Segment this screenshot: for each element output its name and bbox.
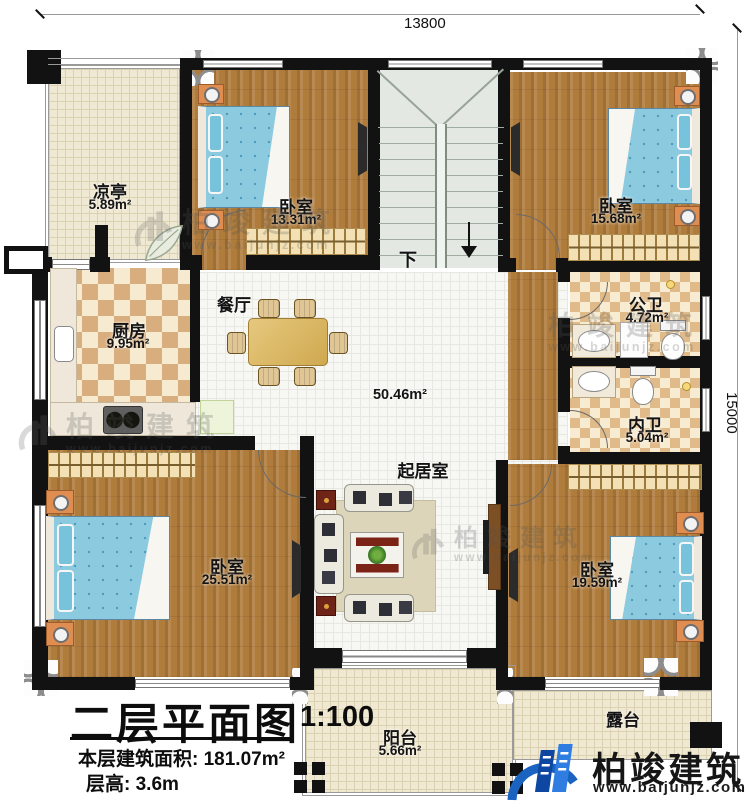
stairs-direction-line	[468, 222, 470, 246]
plant-pavilion	[140, 220, 186, 266]
area-bedroom-se: 19.59m²	[572, 575, 622, 590]
label-stairs-down: 下	[399, 246, 417, 272]
bath-sink	[578, 330, 610, 352]
stairs-center-rail	[435, 124, 447, 268]
label-living: 起居室	[398, 457, 449, 482]
brand-logo-icon	[498, 742, 586, 806]
wall-kitchen-east	[190, 268, 200, 402]
closet-bedroom-nw	[246, 228, 366, 255]
nightstand	[198, 210, 224, 230]
area-bath-private: 5.04m²	[626, 430, 669, 445]
tv-bedroom-ne	[511, 122, 520, 176]
wall-bath-south	[558, 452, 712, 464]
dimension-tick	[695, 4, 705, 14]
dining-chair	[294, 367, 316, 386]
floor-plan: 凉亭 5.89m² 卧室 13.31m² 卧室 15.68m² 厨房 9.95m…	[0, 0, 750, 811]
window-bedroom-nw	[203, 60, 283, 68]
dining-table	[248, 318, 328, 366]
balcony-glass-door	[342, 650, 467, 663]
nightstand	[46, 490, 74, 514]
plan-title: 二层平面图	[70, 690, 300, 752]
window-stairs	[388, 60, 492, 68]
pillow	[57, 570, 74, 612]
pillow	[679, 542, 694, 576]
pillow	[57, 524, 74, 566]
wall-bedroomnw-south	[246, 255, 378, 270]
balcony-pier-group	[294, 762, 307, 775]
wall-bedroomsw-south	[32, 677, 135, 690]
dining-chair	[258, 367, 280, 386]
area-bedroom-sw: 25.51m²	[202, 572, 252, 587]
nightstand	[46, 622, 74, 646]
window-bedroom-ne	[523, 60, 603, 68]
wall-bedroomse-south	[660, 677, 712, 690]
wall-bedroomne-south	[508, 258, 516, 272]
floor-height-line: 层高: 3.6m	[86, 769, 179, 796]
nightstand	[676, 620, 704, 642]
tv-cabinet-living	[488, 504, 501, 590]
title-underline	[70, 737, 290, 740]
pillow	[677, 154, 692, 190]
pillow	[679, 580, 694, 614]
pillow	[208, 114, 223, 152]
dimension-line-top	[40, 14, 700, 15]
toilet-tank	[630, 366, 656, 376]
wall-west-jog	[90, 257, 110, 272]
floor-area-line: 本层建筑面积: 181.07m²	[78, 744, 285, 771]
wall-hall-bath	[558, 272, 570, 282]
side-cabinet	[316, 490, 336, 510]
toilet-bowl	[632, 378, 654, 405]
area-bedroom-nw: 13.31m²	[271, 212, 321, 227]
area-pavilion: 5.89m²	[89, 197, 132, 212]
kitchen-sink	[54, 326, 74, 362]
closet-bedroom-ne	[568, 234, 700, 261]
dining-chair	[294, 299, 316, 318]
floor-height-label: 层高:	[86, 774, 130, 795]
window-bedroom-sw-south	[135, 679, 290, 688]
ceiling-lamp	[682, 382, 691, 391]
kitchen-door-mat	[200, 400, 234, 434]
closet-bedroom-se	[568, 464, 702, 490]
wall-living-south	[300, 648, 342, 668]
dining-chair	[227, 332, 246, 354]
pillow	[208, 156, 223, 194]
shower-tray	[620, 322, 648, 358]
area-living: 50.46m²	[373, 387, 427, 403]
nightstand	[198, 84, 224, 104]
area-bath-public: 4.72m²	[626, 310, 669, 325]
pavilion-railing	[48, 58, 180, 65]
tv-bedroom-se	[509, 548, 518, 602]
nightstand	[674, 86, 700, 106]
side-cabinet	[316, 596, 336, 616]
tv-bedroom-nw	[358, 122, 367, 176]
tv-living	[483, 520, 489, 574]
floor-height-value: 3.6m	[136, 774, 179, 795]
stairs-direction-arrow	[461, 246, 477, 258]
kitchen-stove	[103, 406, 143, 434]
nightstand	[676, 512, 704, 534]
dining-chair	[329, 332, 348, 354]
window-bedroom-se-south	[545, 679, 660, 688]
dining-chair	[258, 299, 280, 318]
sofa-bottom	[344, 594, 414, 622]
sofa-top	[344, 484, 414, 512]
floor-hallway	[508, 272, 558, 460]
brand-url: www.baijunjz.com	[593, 779, 746, 796]
nightstand	[674, 206, 700, 226]
area-balcony: 5.66m²	[379, 743, 422, 758]
window-bath-public	[702, 296, 710, 340]
tv-bedroom-sw	[292, 540, 301, 598]
pillar-pavilion	[27, 50, 61, 84]
sofa-left	[314, 514, 344, 594]
toilet-bowl	[661, 333, 685, 360]
wall-bedroomsw-north	[32, 436, 255, 450]
ceiling-lamp	[666, 280, 675, 289]
label-dining: 餐厅	[217, 291, 251, 316]
closet-bedroom-sw	[48, 452, 196, 478]
pillow	[677, 114, 692, 150]
wall-bedroomsw-south	[290, 677, 314, 690]
window-kitchen	[34, 300, 46, 400]
plant-coffee-table	[368, 546, 386, 564]
bath-sink	[578, 371, 610, 392]
dimension-right-value: 15000	[723, 392, 740, 434]
floor-area-value: 181.07m²	[204, 749, 285, 770]
dimension-top-value: 13800	[404, 15, 446, 32]
floor-area-label: 本层建筑面积:	[78, 749, 198, 770]
label-terrace: 露台	[606, 706, 640, 731]
area-kitchen: 9.95m²	[107, 336, 150, 351]
area-bedroom-ne: 15.68m²	[591, 211, 641, 226]
bay-niche	[4, 246, 48, 274]
window-bath-private	[702, 388, 710, 432]
window-bedroom-sw	[34, 505, 46, 627]
plan-scale: 1:100	[300, 701, 374, 734]
wall-bedroomse-south	[496, 677, 545, 690]
